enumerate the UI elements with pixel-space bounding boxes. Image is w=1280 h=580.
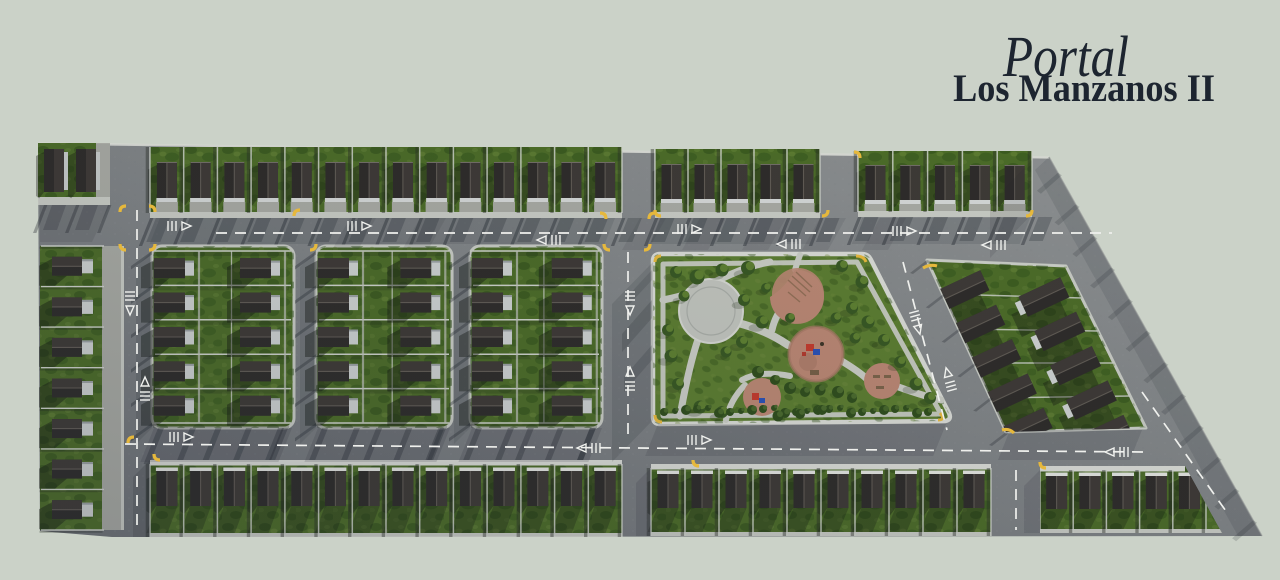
svg-text:Los Manzanos II: Los Manzanos II	[953, 67, 1215, 110]
